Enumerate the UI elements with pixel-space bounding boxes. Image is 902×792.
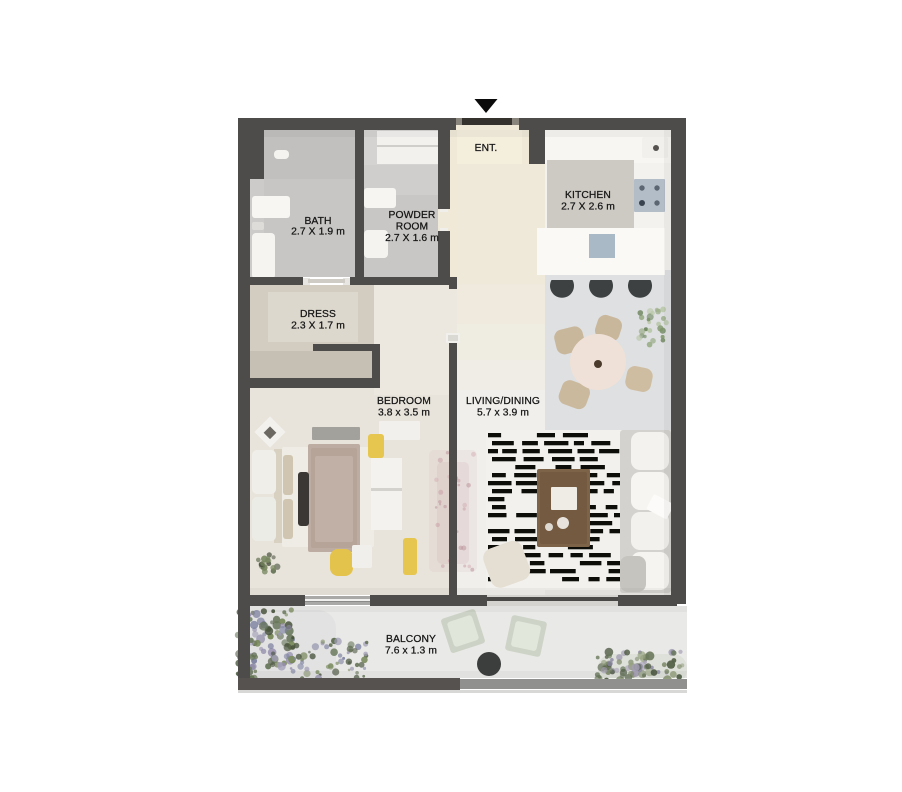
svg-text:ROOM: ROOM bbox=[396, 222, 428, 233]
svg-text:DRESS: DRESS bbox=[300, 309, 336, 320]
svg-text:5.7 x 3.9 m: 5.7 x 3.9 m bbox=[477, 408, 529, 419]
svg-text:LIVING/DINING: LIVING/DINING bbox=[466, 396, 540, 407]
svg-text:BALCONY: BALCONY bbox=[386, 634, 436, 645]
svg-text:POWDER: POWDER bbox=[389, 210, 436, 221]
svg-text:BEDROOM: BEDROOM bbox=[377, 396, 431, 407]
svg-text:7.6 x 1.3 m: 7.6 x 1.3 m bbox=[385, 646, 437, 657]
svg-text:2.7 X 1.6 m: 2.7 X 1.6 m bbox=[385, 233, 439, 244]
svg-text:2.3 X 1.7 m: 2.3 X 1.7 m bbox=[291, 321, 345, 332]
svg-text:BATH: BATH bbox=[304, 216, 331, 227]
svg-text:KITCHEN: KITCHEN bbox=[565, 190, 611, 201]
svg-text:2.7 X 2.6 m: 2.7 X 2.6 m bbox=[561, 202, 615, 213]
svg-text:ENT.: ENT. bbox=[475, 143, 498, 154]
svg-text:2.7 X 1.9 m: 2.7 X 1.9 m bbox=[291, 227, 345, 238]
svg-text:3.8 x 3.5 m: 3.8 x 3.5 m bbox=[378, 408, 430, 419]
